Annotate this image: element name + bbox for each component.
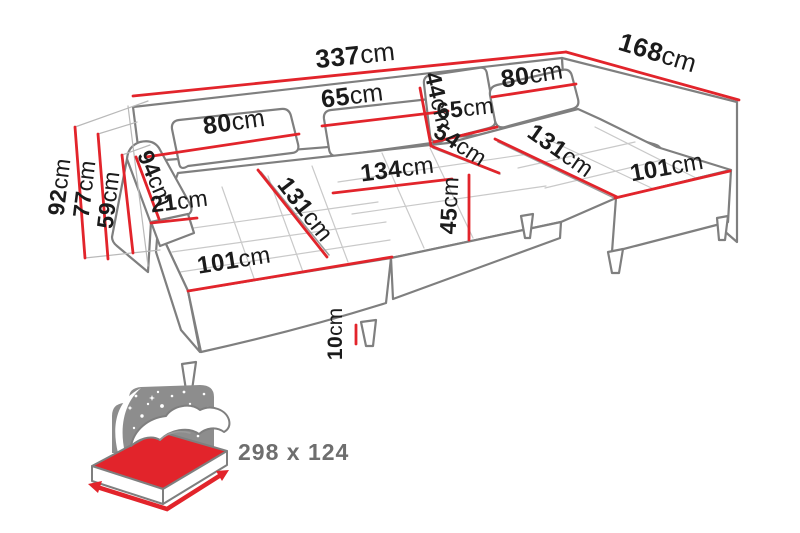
leg [717,216,728,240]
sleeping-function-bed-icon [88,385,229,509]
seat-height-label: 45cm [435,176,464,235]
leg-height-label: 10cm [324,308,347,360]
leg [361,320,376,346]
sleeping-area-size: 298 x 124 [238,439,349,465]
dimension-diagram: 337cm 168cm 92cm 77cm 59cm 94cm 21cm 80c… [0,0,800,533]
sofa-illustration [75,58,737,390]
total-width-label: 337cm [314,36,396,74]
leg [608,249,623,273]
